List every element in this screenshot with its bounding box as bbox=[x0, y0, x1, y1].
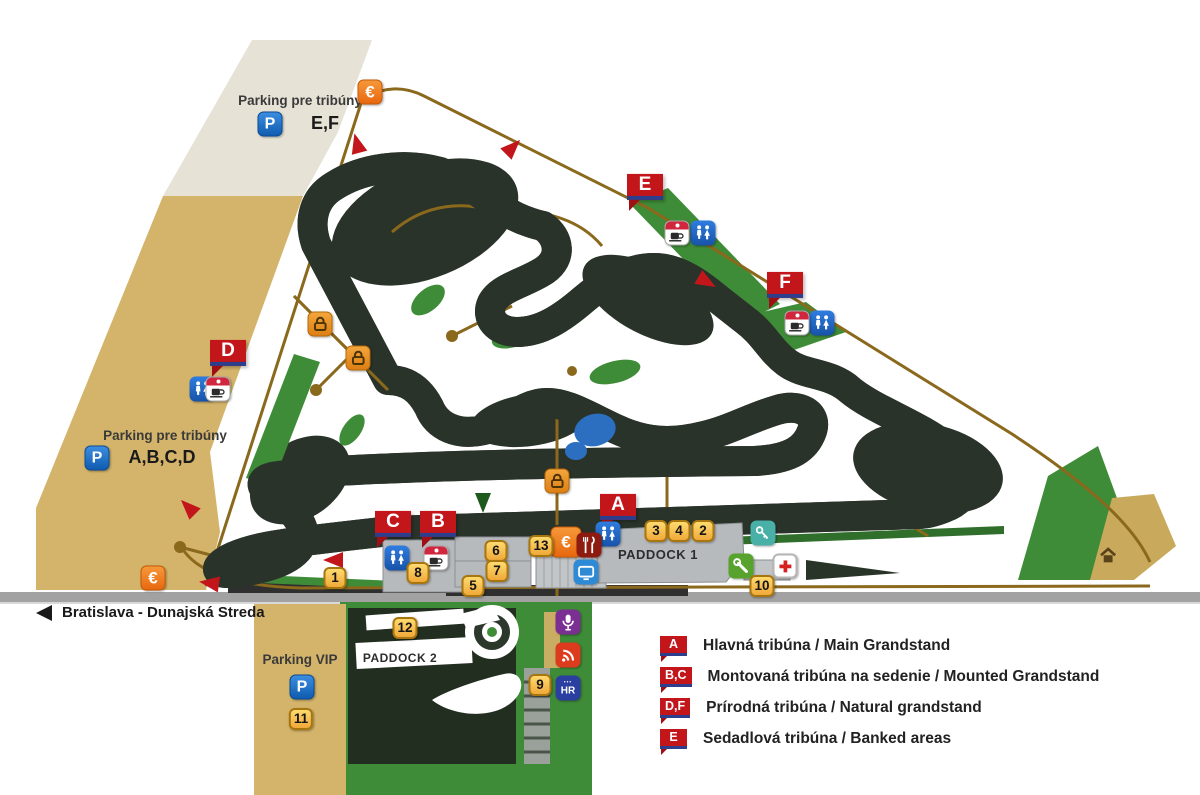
coffee-icon bbox=[206, 377, 231, 402]
number-marker-4: 4 bbox=[668, 520, 691, 542]
number-marker-2: 2 bbox=[692, 520, 715, 542]
coffee-icon bbox=[665, 221, 690, 246]
grandstand-marker-b: B bbox=[420, 511, 456, 537]
medical-icon bbox=[773, 554, 798, 579]
legend-marker-bc: B,C bbox=[660, 667, 692, 687]
parking-abcd-zones: A,B,C,D bbox=[112, 447, 212, 468]
number-marker-3: 3 bbox=[645, 520, 668, 542]
parking-ef-title: Parking pre tribúny bbox=[225, 93, 375, 108]
wc-icon bbox=[691, 221, 716, 246]
coffee-icon bbox=[785, 311, 810, 336]
number-marker-7: 7 bbox=[486, 560, 509, 582]
red-direction-arrow-icon bbox=[175, 494, 200, 519]
number-marker-6: 6 bbox=[485, 540, 508, 562]
red-direction-arrow-icon bbox=[694, 270, 719, 294]
legend-row: B,C Montovaná tribúna na sedenie / Mount… bbox=[660, 661, 1140, 692]
number-marker-13: 13 bbox=[528, 535, 553, 557]
red-direction-arrow-icon bbox=[347, 131, 368, 154]
restaurant-icon bbox=[577, 533, 602, 558]
red-direction-arrow-icon bbox=[198, 574, 220, 593]
hr-icon: •••HR bbox=[556, 676, 581, 701]
number-marker-12: 12 bbox=[392, 617, 417, 639]
green-direction-arrow-icon bbox=[475, 493, 491, 513]
grandstand-marker-e: E bbox=[627, 174, 663, 200]
red-direction-arrow-icon bbox=[323, 552, 343, 568]
number-marker-1: 1 bbox=[324, 567, 347, 589]
circuit-map: ABCDEF12345678910111213€€€•••HRPPP Parki… bbox=[0, 0, 1200, 795]
number-marker-5: 5 bbox=[462, 575, 485, 597]
road-sign: Bratislava - Dunajská Streda bbox=[36, 604, 265, 621]
paddock1-label: PADDOCK 1 bbox=[598, 547, 718, 562]
legend-text: Sedadlová tribúna / Banked areas bbox=[703, 730, 951, 748]
number-marker-11: 11 bbox=[289, 708, 313, 730]
parking-vip-title: Parking VIP bbox=[250, 652, 350, 667]
parking-icon: P bbox=[258, 112, 283, 137]
number-marker-8: 8 bbox=[407, 562, 430, 584]
number-marker-9: 9 bbox=[529, 674, 552, 696]
parking-abcd-title: Parking pre tribúny bbox=[65, 428, 265, 443]
parking-ef-zones: E,F bbox=[298, 113, 352, 134]
legend-text: Montovaná tribúna na sedenie / Mounted G… bbox=[708, 668, 1100, 686]
lock-icon bbox=[308, 312, 333, 337]
grandstand-marker-f: F bbox=[767, 272, 803, 298]
hut-icon bbox=[1096, 544, 1121, 569]
wrench-icon bbox=[729, 554, 754, 579]
lock-icon bbox=[545, 469, 570, 494]
legend-marker-df: D,F bbox=[660, 698, 690, 718]
mic-icon bbox=[556, 610, 581, 635]
key-icon bbox=[751, 521, 776, 546]
legend-row: A Hlavná tribúna / Main Grandstand bbox=[660, 630, 1140, 661]
road-sign-label: Bratislava - Dunajská Streda bbox=[62, 604, 265, 621]
lock-icon bbox=[346, 346, 371, 371]
parking-icon: P bbox=[290, 675, 315, 700]
legend: A Hlavná tribúna / Main Grandstand B,C M… bbox=[660, 630, 1140, 754]
legend-text: Prírodná tribúna / Natural grandstand bbox=[706, 699, 982, 717]
screen-icon bbox=[574, 560, 599, 585]
legend-row: E Sedadlová tribúna / Banked areas bbox=[660, 723, 1140, 754]
legend-marker-e: E bbox=[660, 729, 687, 749]
signal-icon bbox=[556, 643, 581, 668]
left-arrow-icon bbox=[36, 605, 52, 621]
euro-icon: € bbox=[358, 80, 383, 105]
euro-icon: € bbox=[141, 566, 166, 591]
grandstand-marker-d: D bbox=[210, 340, 246, 366]
legend-row: D,F Prírodná tribúna / Natural grandstan… bbox=[660, 692, 1140, 723]
grandstand-marker-a: A bbox=[600, 494, 636, 520]
number-marker-10: 10 bbox=[749, 575, 774, 597]
grandstand-marker-c: C bbox=[375, 511, 411, 537]
legend-marker-a: A bbox=[660, 636, 687, 656]
legend-text: Hlavná tribúna / Main Grandstand bbox=[703, 637, 950, 655]
wc-icon bbox=[810, 311, 835, 336]
red-direction-arrow-icon bbox=[500, 134, 525, 159]
parking-icon: P bbox=[85, 446, 110, 471]
paddock2-label: PADDOCK 2 bbox=[350, 651, 450, 665]
